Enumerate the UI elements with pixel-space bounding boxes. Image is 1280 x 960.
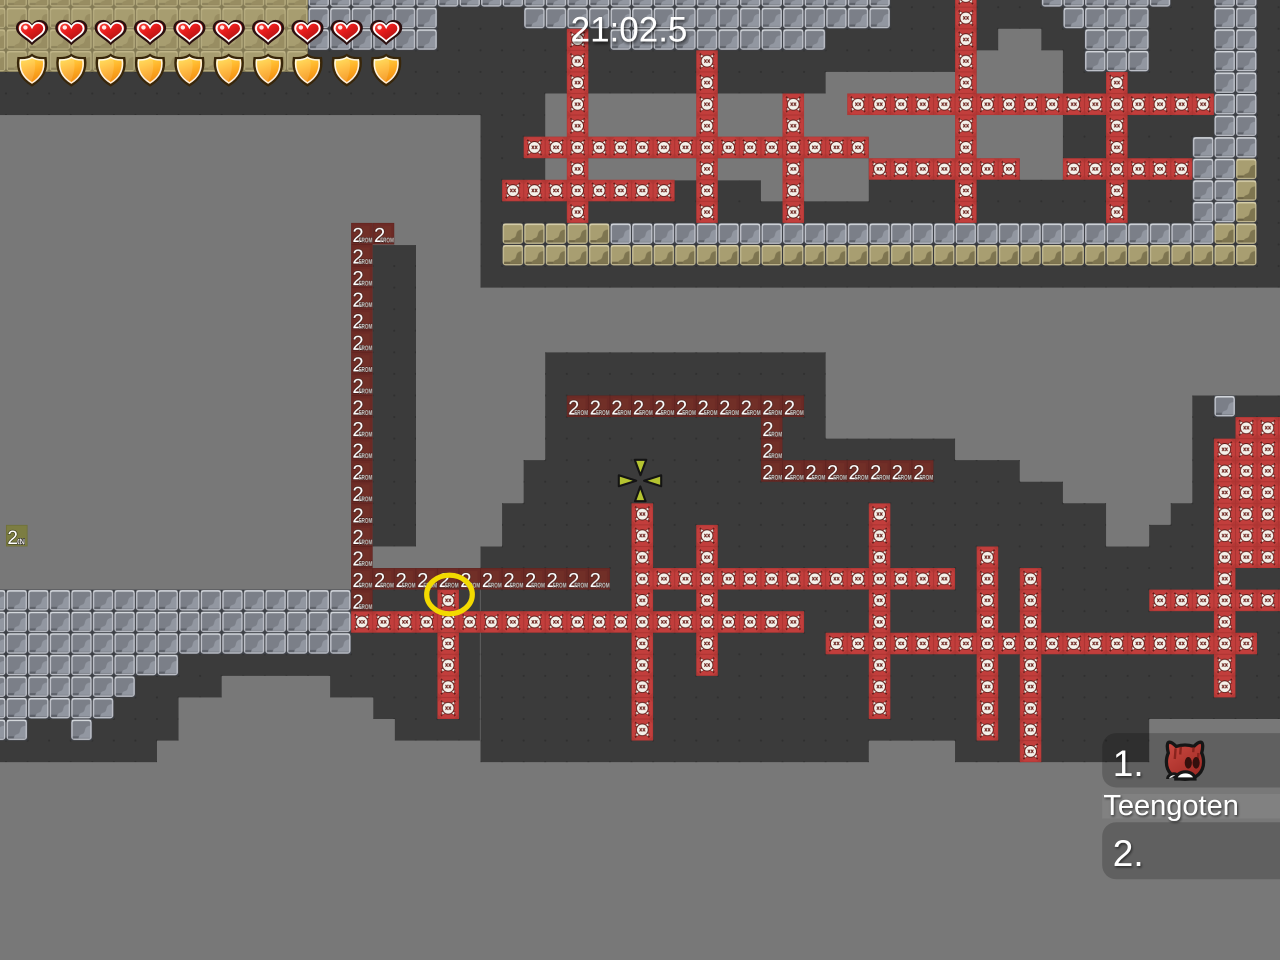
- svg-text:21:02.5: 21:02.5: [571, 11, 688, 50]
- svg-text:2.: 2.: [1113, 833, 1144, 874]
- svg-text:1.: 1.: [1113, 743, 1144, 784]
- svg-text:ON: ON: [17, 537, 25, 546]
- svg-text:Teengoten: Teengoten: [1103, 790, 1238, 822]
